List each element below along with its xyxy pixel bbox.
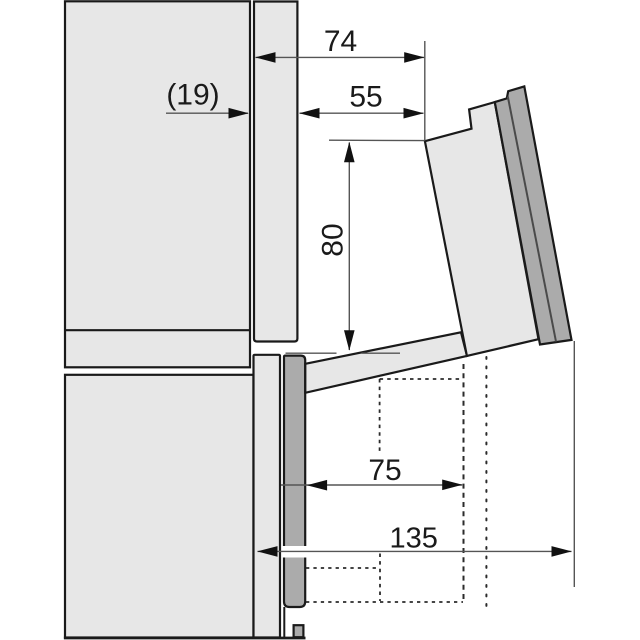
svg-text:75: 75 bbox=[368, 454, 401, 487]
svg-text:55: 55 bbox=[349, 80, 382, 113]
svg-text:74: 74 bbox=[324, 25, 357, 58]
svg-text:(19): (19) bbox=[166, 78, 219, 111]
svg-text:80: 80 bbox=[317, 223, 350, 256]
svg-text:135: 135 bbox=[390, 522, 438, 554]
